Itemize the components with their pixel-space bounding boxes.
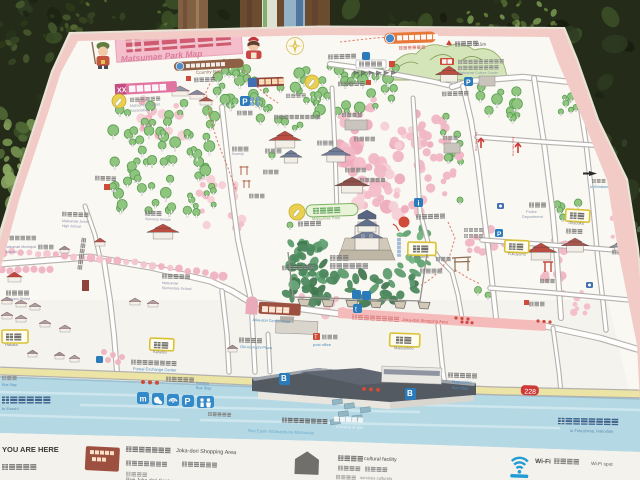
svg-text:215m: 215m bbox=[475, 42, 487, 47]
